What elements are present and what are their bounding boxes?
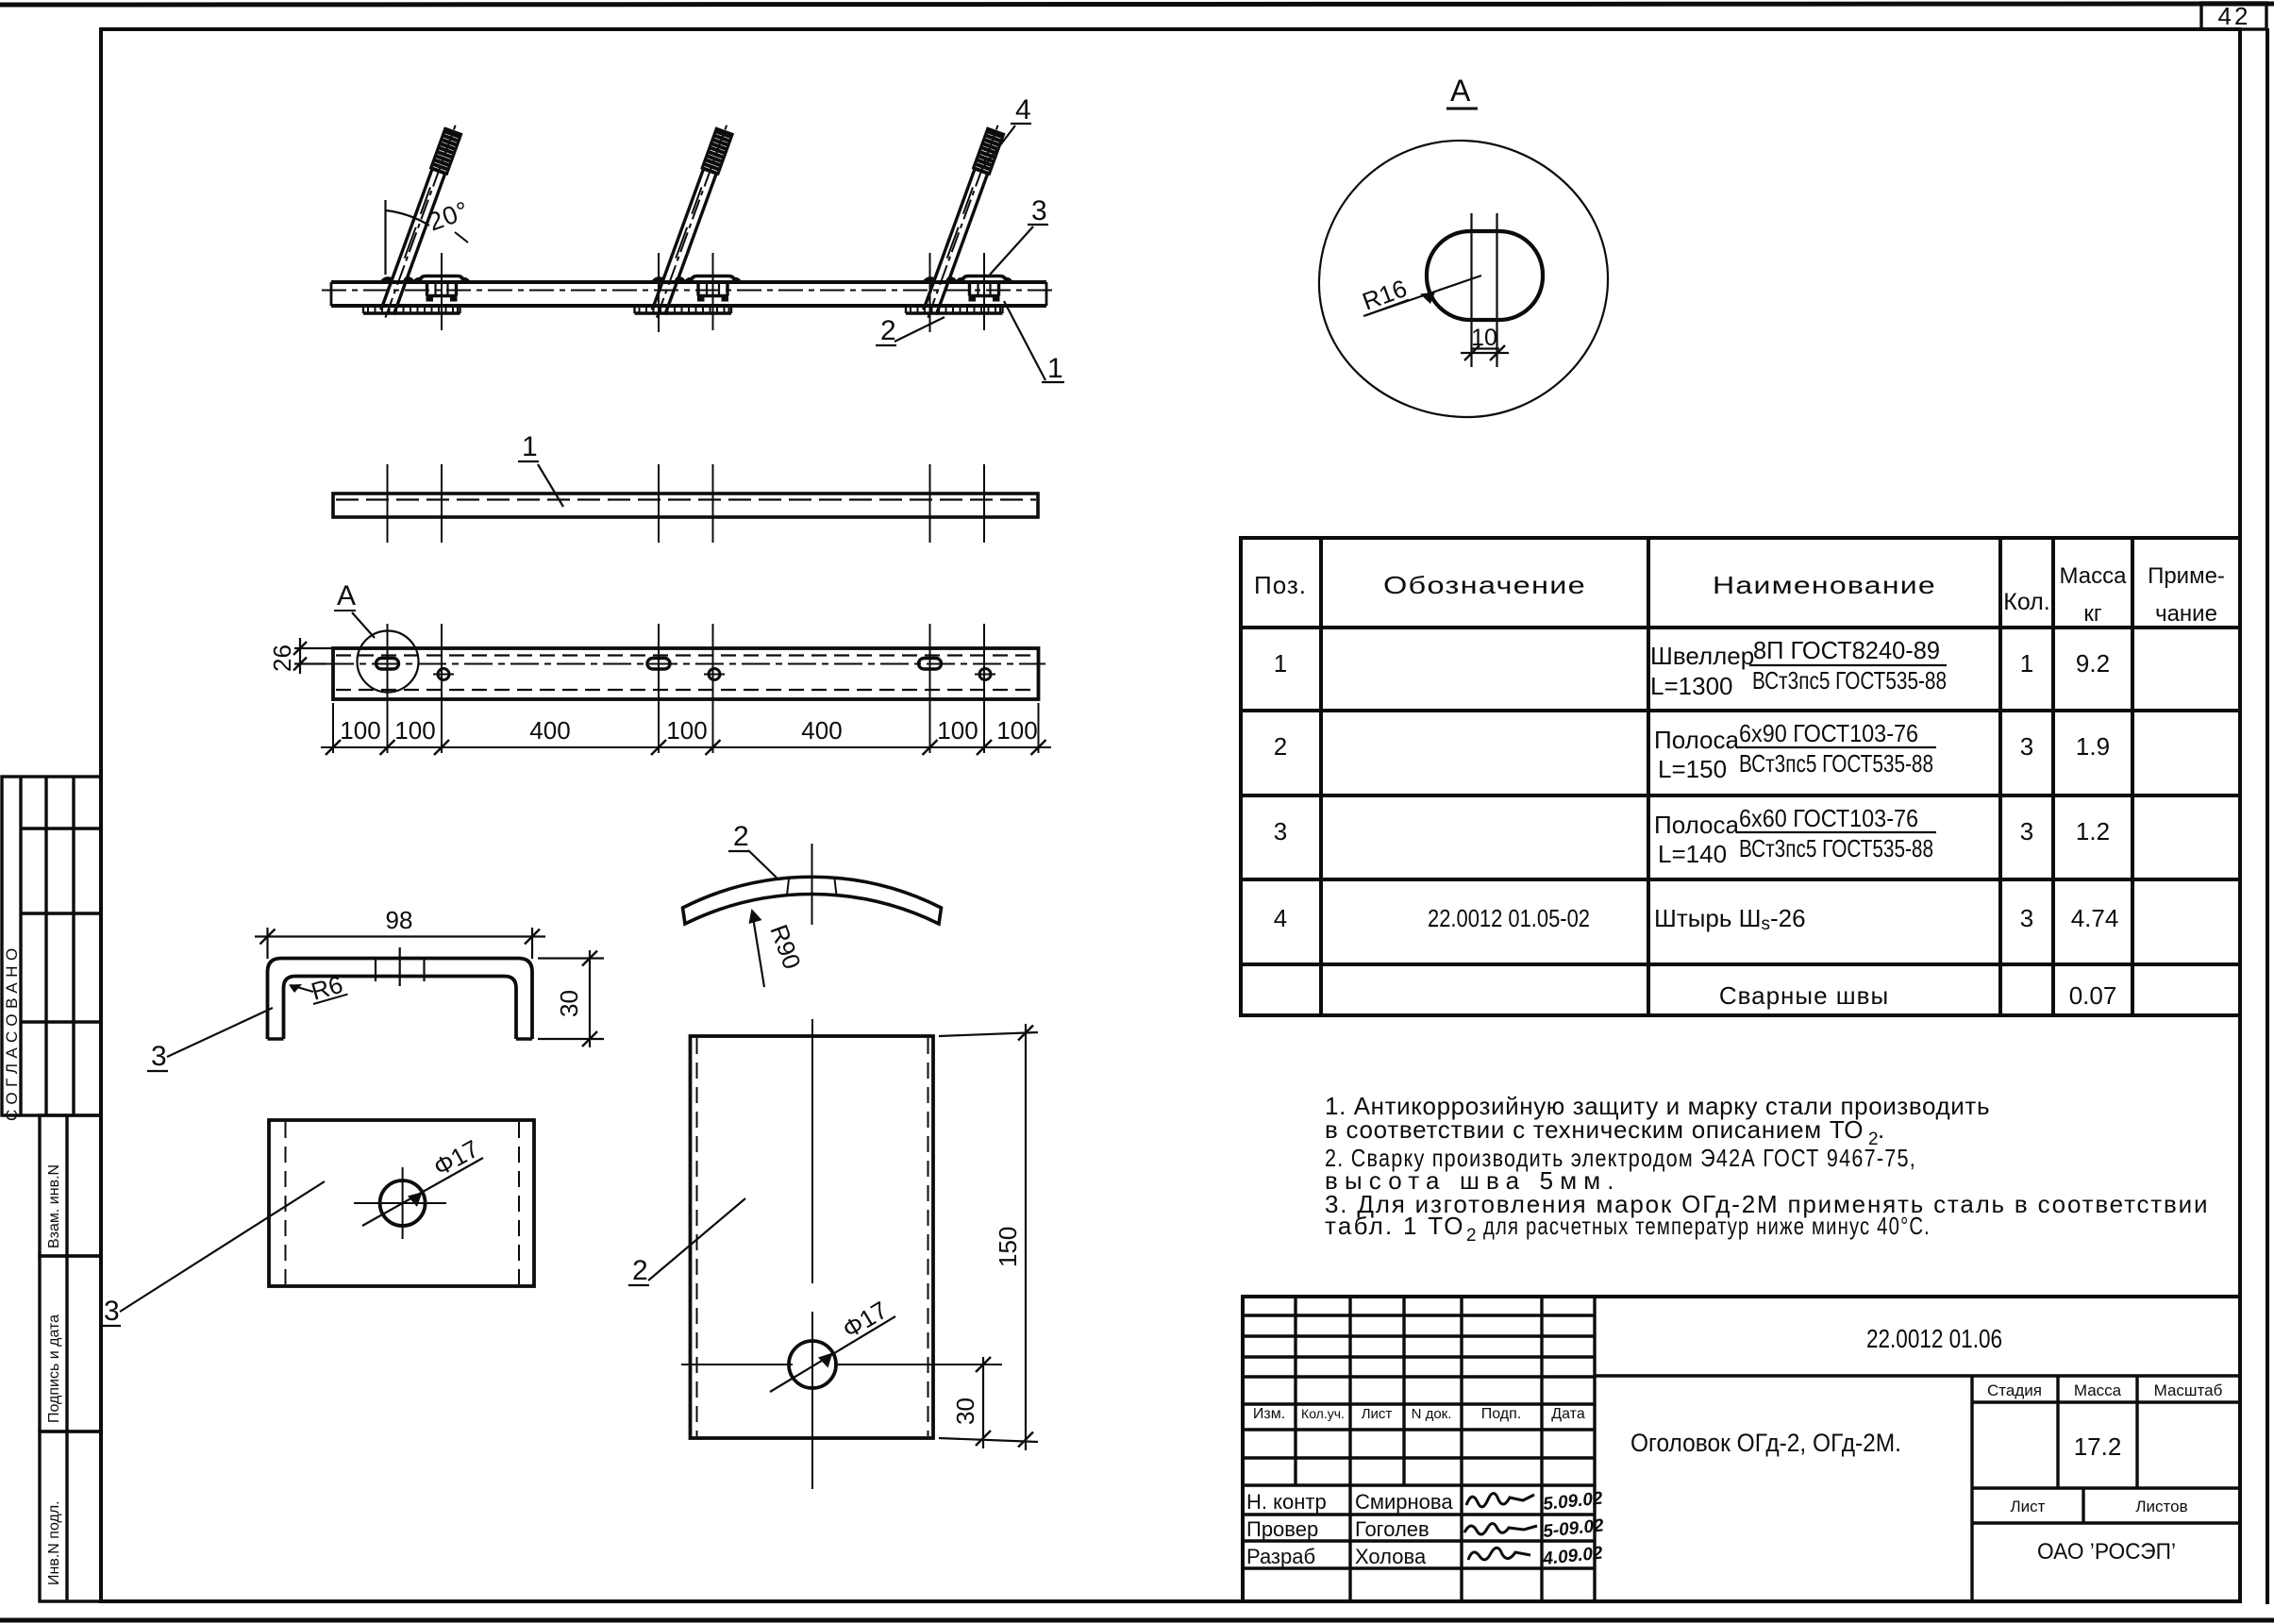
svg-text:Смирнова: Смирнова: [1355, 1490, 1453, 1514]
svg-text:L=140: L=140: [1658, 840, 1727, 868]
svg-text:100: 100: [937, 716, 978, 745]
svg-text:ВСт3пс5 ГОСТ535-88: ВСт3пс5 ГОСТ535-88: [1739, 749, 1933, 778]
svg-text:Лист: Лист: [2011, 1498, 2046, 1515]
svg-text:1: 1: [2020, 649, 2033, 678]
svg-text:N док.: N док.: [1412, 1406, 1452, 1422]
svg-text:400: 400: [801, 716, 842, 745]
svg-text:98: 98: [386, 906, 413, 934]
svg-text:6x90 ГОСТ103-76: 6x90 ГОСТ103-76: [1739, 719, 1918, 747]
svg-text:400: 400: [529, 716, 570, 745]
svg-text:17.2: 17.2: [2074, 1432, 2122, 1461]
svg-text:10: 10: [1471, 325, 1497, 351]
svg-text:СОГЛАСОВАНО: СОГЛАСОВАНО: [3, 943, 21, 1121]
svg-text:8П ГОСТ8240-89: 8П ГОСТ8240-89: [1753, 636, 1940, 664]
svg-text:22.0012 01.06: 22.0012 01.06: [1866, 1324, 2002, 1353]
svg-text:1: 1: [1274, 649, 1287, 678]
svg-text:ВСт3пс5 ГОСТ535-88: ВСт3пс5 ГОСТ535-88: [1752, 666, 1947, 695]
svg-text:Н. контр: Н. контр: [1246, 1490, 1327, 1514]
svg-text:табл. 1 ТО: табл. 1 ТО: [1325, 1212, 1464, 1240]
svg-text:Изм.: Изм.: [1253, 1406, 1285, 1422]
svg-text:Обозначение: Обозначение: [1383, 571, 1586, 599]
svg-text:100: 100: [996, 716, 1037, 745]
svg-text:L=150: L=150: [1658, 755, 1727, 783]
svg-text:1.2: 1.2: [2076, 817, 2110, 845]
svg-text:3: 3: [104, 1296, 120, 1327]
svg-text:Сварные швы: Сварные швы: [1719, 981, 1889, 1010]
svg-text:26: 26: [268, 645, 296, 672]
svg-text:150: 150: [994, 1227, 1022, 1267]
svg-text:Приме-: Приме-: [2148, 563, 2225, 589]
svg-text:3: 3: [1031, 195, 1047, 226]
svg-text:Подпись и дата: Подпись и дата: [46, 1314, 62, 1423]
svg-text:6x60 ГОСТ103-76: 6x60 ГОСТ103-76: [1739, 804, 1918, 832]
svg-text:3: 3: [2020, 732, 2033, 761]
svg-text:1: 1: [522, 431, 538, 462]
svg-text:Масштаб: Масштаб: [2154, 1381, 2223, 1399]
svg-text:2: 2: [632, 1255, 648, 1286]
svg-text:1.9: 1.9: [2076, 732, 2110, 761]
svg-text:Подп.: Подп.: [1481, 1406, 1522, 1422]
svg-text:22.0012 01.05-02: 22.0012 01.05-02: [1428, 904, 1590, 932]
svg-text:Полоса: Полоса: [1654, 726, 1739, 754]
svg-text:Стадия: Стадия: [1987, 1381, 2042, 1399]
svg-text:3: 3: [151, 1041, 167, 1072]
svg-text:Масса: Масса: [2060, 563, 2128, 589]
svg-text:A: A: [1450, 74, 1471, 108]
svg-text:3: 3: [2020, 817, 2033, 845]
svg-text:2: 2: [880, 315, 896, 346]
svg-text:чание: чание: [2155, 601, 2217, 627]
svg-text:Наименование: Наименование: [1713, 571, 1936, 599]
svg-text:.: .: [1878, 1115, 1886, 1144]
svg-text:Листов: Листов: [2135, 1498, 2187, 1515]
svg-text:100: 100: [394, 716, 435, 745]
svg-text:2: 2: [733, 821, 749, 852]
svg-text:для расчетных температур ниже: для расчетных температур ниже минус 40°С…: [1483, 1212, 1931, 1240]
svg-text:Масса: Масса: [2074, 1381, 2122, 1399]
svg-text:Холова: Холова: [1355, 1545, 1427, 1568]
svg-text:Дата: Дата: [1551, 1406, 1585, 1422]
svg-text:4.74: 4.74: [2071, 904, 2119, 932]
svg-text:Лист: Лист: [1362, 1406, 1393, 1422]
svg-text:3: 3: [2020, 904, 2033, 932]
svg-text:ВСт3пс5 ГОСТ535-88: ВСт3пс5 ГОСТ535-88: [1739, 834, 1933, 862]
svg-text:30: 30: [555, 990, 583, 1017]
svg-text:Инв.N подл.: Инв.N подл.: [46, 1500, 62, 1585]
svg-text:2: 2: [1274, 732, 1287, 761]
svg-text:Кол.уч.: Кол.уч.: [1301, 1406, 1345, 1421]
svg-text:Штырь Шs-26: Штырь Шs-26: [1654, 904, 1806, 934]
svg-text:100: 100: [666, 716, 707, 745]
svg-text:0.07: 0.07: [2069, 981, 2117, 1010]
svg-text:Разраб: Разраб: [1246, 1545, 1315, 1568]
svg-text:Кол.: Кол.: [2003, 589, 2049, 615]
svg-text:4: 4: [1274, 904, 1287, 932]
svg-text:Оголовок ОГд-2, ОГд-2М.: Оголовок ОГд-2, ОГд-2М.: [1630, 1429, 1901, 1457]
svg-text:Полоса: Полоса: [1654, 811, 1739, 839]
svg-text:в соответствии с техническим о: в соответствии с техническим описанием Т…: [1325, 1115, 1864, 1144]
svg-text:кг: кг: [2083, 601, 2102, 627]
svg-text:Гоголев: Гоголев: [1355, 1517, 1430, 1541]
svg-text:Поз.: Поз.: [1254, 571, 1307, 599]
svg-text:42: 42: [2218, 2, 2251, 30]
svg-text:3: 3: [1274, 817, 1287, 845]
svg-text:Провер: Провер: [1246, 1517, 1318, 1541]
svg-text:Швеллер: Швеллер: [1650, 642, 1754, 670]
svg-text:Взам. инв.N: Взам. инв.N: [46, 1164, 62, 1248]
svg-text:2: 2: [1466, 1226, 1478, 1246]
svg-text:1: 1: [1047, 353, 1063, 384]
svg-text:ОАО ’РОСЭП’: ОАО ’РОСЭП’: [2037, 1539, 2176, 1565]
svg-text:9.2: 9.2: [2076, 649, 2110, 678]
svg-text:100: 100: [340, 716, 380, 745]
svg-text:L=1300: L=1300: [1650, 672, 1732, 700]
svg-text:4: 4: [1015, 94, 1031, 126]
svg-text:30: 30: [951, 1398, 979, 1425]
svg-text:A: A: [337, 580, 356, 611]
